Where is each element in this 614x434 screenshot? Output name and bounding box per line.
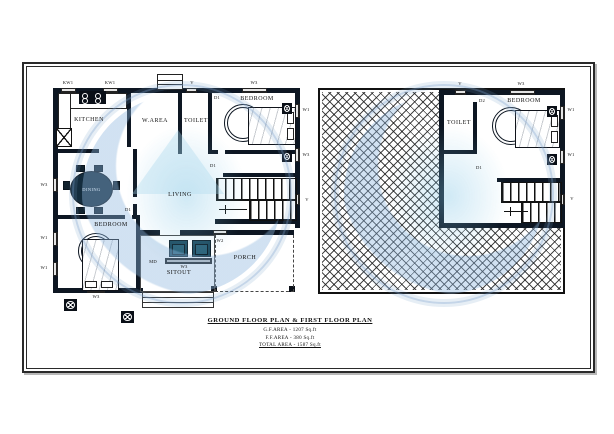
- kitchen-counter: [58, 93, 71, 130]
- stair-flight: [501, 182, 562, 202]
- label-d1: D1: [210, 164, 216, 169]
- sitout-chair: [169, 240, 188, 257]
- window-marker: [242, 88, 267, 93]
- ff-area-text: F.F.AREA - 380 Sq.ft: [180, 336, 400, 341]
- porch-outline: [215, 235, 294, 292]
- floor-plan-sheet: DINING KITCHEN W.AREA TOILET: [0, 0, 614, 434]
- wall: [439, 90, 444, 228]
- first-floor-plan: TOILET BEDROOM V W3 D2 W1 W1 D1 V: [318, 88, 565, 294]
- label-md: MD: [149, 260, 157, 265]
- wall: [208, 150, 218, 154]
- wall: [439, 223, 565, 228]
- dining-room-label: DINING: [82, 187, 100, 192]
- nightstand: [282, 103, 292, 114]
- label-gd: GD: [163, 90, 170, 95]
- stove-burner: [95, 98, 101, 104]
- wall: [178, 88, 182, 154]
- sitout-chair: [192, 240, 211, 257]
- label-w1: W1: [567, 153, 574, 158]
- stair-landing-line: [501, 201, 562, 203]
- window-marker: [510, 90, 535, 95]
- label-v: V: [458, 82, 462, 87]
- pillow: [287, 128, 294, 140]
- label-w1: W1: [40, 236, 47, 241]
- nightstand: [121, 311, 134, 323]
- window-marker: [560, 150, 565, 164]
- room-label-kitchen: KITCHEN: [74, 117, 104, 123]
- stove-burner: [82, 98, 88, 104]
- room-label-bedroom2: BEDROOM: [94, 222, 128, 228]
- wall: [53, 149, 99, 153]
- stair-flight: [521, 202, 562, 223]
- label-kw1: KW1: [105, 81, 116, 86]
- wall: [208, 88, 212, 150]
- nightstand: [547, 154, 557, 165]
- room-label-bedroom: BEDROOM: [507, 98, 541, 104]
- label-w3: W3: [40, 183, 47, 188]
- label-w3: W3: [180, 265, 187, 270]
- pillow: [85, 281, 97, 288]
- nightstand: [64, 299, 77, 311]
- stair-direction-tick: [225, 205, 226, 214]
- window-marker: [53, 262, 58, 276]
- window-marker: [560, 106, 565, 120]
- dining-chair: [63, 181, 70, 190]
- dining-chair: [76, 207, 85, 214]
- room-label-sitout: SITOUT: [167, 270, 191, 276]
- gd-projection-box: [157, 74, 183, 90]
- label-w3: W3: [302, 153, 309, 158]
- label-w3: W3: [250, 81, 257, 86]
- drawing-title: GROUND FLOOR PLAN & FIRST FLOOR PLAN: [180, 317, 400, 324]
- label-d1: D1: [214, 96, 220, 101]
- dining-chair: [113, 181, 120, 190]
- label-d2: D2: [479, 99, 485, 104]
- wall: [133, 204, 137, 219]
- stair-flight: [249, 200, 297, 221]
- wall: [53, 215, 125, 219]
- window-marker: [186, 88, 197, 93]
- label-w1: W1: [40, 266, 47, 271]
- ground-floor-plan: DINING KITCHEN W.AREA TOILET: [53, 88, 305, 314]
- room-label-living: LIVING: [168, 192, 192, 198]
- room-label-toilet: TOILET: [447, 120, 471, 126]
- pillow: [101, 281, 113, 288]
- wall: [473, 102, 477, 152]
- title-block: GROUND FLOOR PLAN & FIRST FLOOR PLAN G.F…: [180, 317, 400, 348]
- stair-flight: [216, 178, 297, 200]
- window-marker: [455, 90, 466, 95]
- dining-chair: [76, 165, 85, 172]
- label-kw1: KW1: [63, 81, 74, 86]
- dining-table: DINING: [70, 171, 113, 207]
- nightstand: [547, 106, 557, 117]
- label-v: V: [305, 198, 309, 203]
- stair-direction-line: [504, 211, 528, 212]
- stair-direction-tick: [510, 207, 511, 216]
- stair-direction-line: [219, 209, 247, 210]
- wall: [223, 173, 300, 177]
- stove: [79, 91, 106, 104]
- wall: [444, 150, 477, 154]
- label-w1: W1: [567, 108, 574, 113]
- nightstand: [282, 151, 292, 162]
- dining-chair: [94, 207, 103, 214]
- label-v: V: [570, 197, 574, 202]
- label-d1: D1: [476, 166, 482, 171]
- gf-area-text: G.F.AREA - 1207 Sq.ft: [180, 328, 400, 333]
- wash-unit: [56, 128, 72, 147]
- wall: [133, 149, 137, 197]
- label-w3: W3: [92, 295, 99, 300]
- stair-landing-line: [216, 199, 297, 201]
- room-label-toilet: TOILET: [184, 118, 208, 124]
- label-w3: W3: [517, 82, 524, 87]
- window-marker: [53, 232, 58, 246]
- window-marker: [53, 178, 58, 192]
- window-marker: [295, 148, 300, 162]
- wall: [127, 88, 131, 147]
- room-label-warea: W.AREA: [142, 118, 168, 124]
- label-v: V: [190, 81, 194, 86]
- room-label-bedroom1: BEDROOM: [240, 96, 274, 102]
- label-w2: W2: [216, 239, 223, 244]
- total-area-text: TOTAL AREA - 1587 Sq.ft: [180, 343, 400, 348]
- entry-steps: [142, 292, 214, 308]
- pillow: [551, 131, 558, 143]
- label-w1: W1: [302, 108, 309, 113]
- sitout-bench: [165, 258, 212, 264]
- room-label-porch: PORCH: [234, 255, 257, 261]
- label-d1: D1: [125, 208, 131, 213]
